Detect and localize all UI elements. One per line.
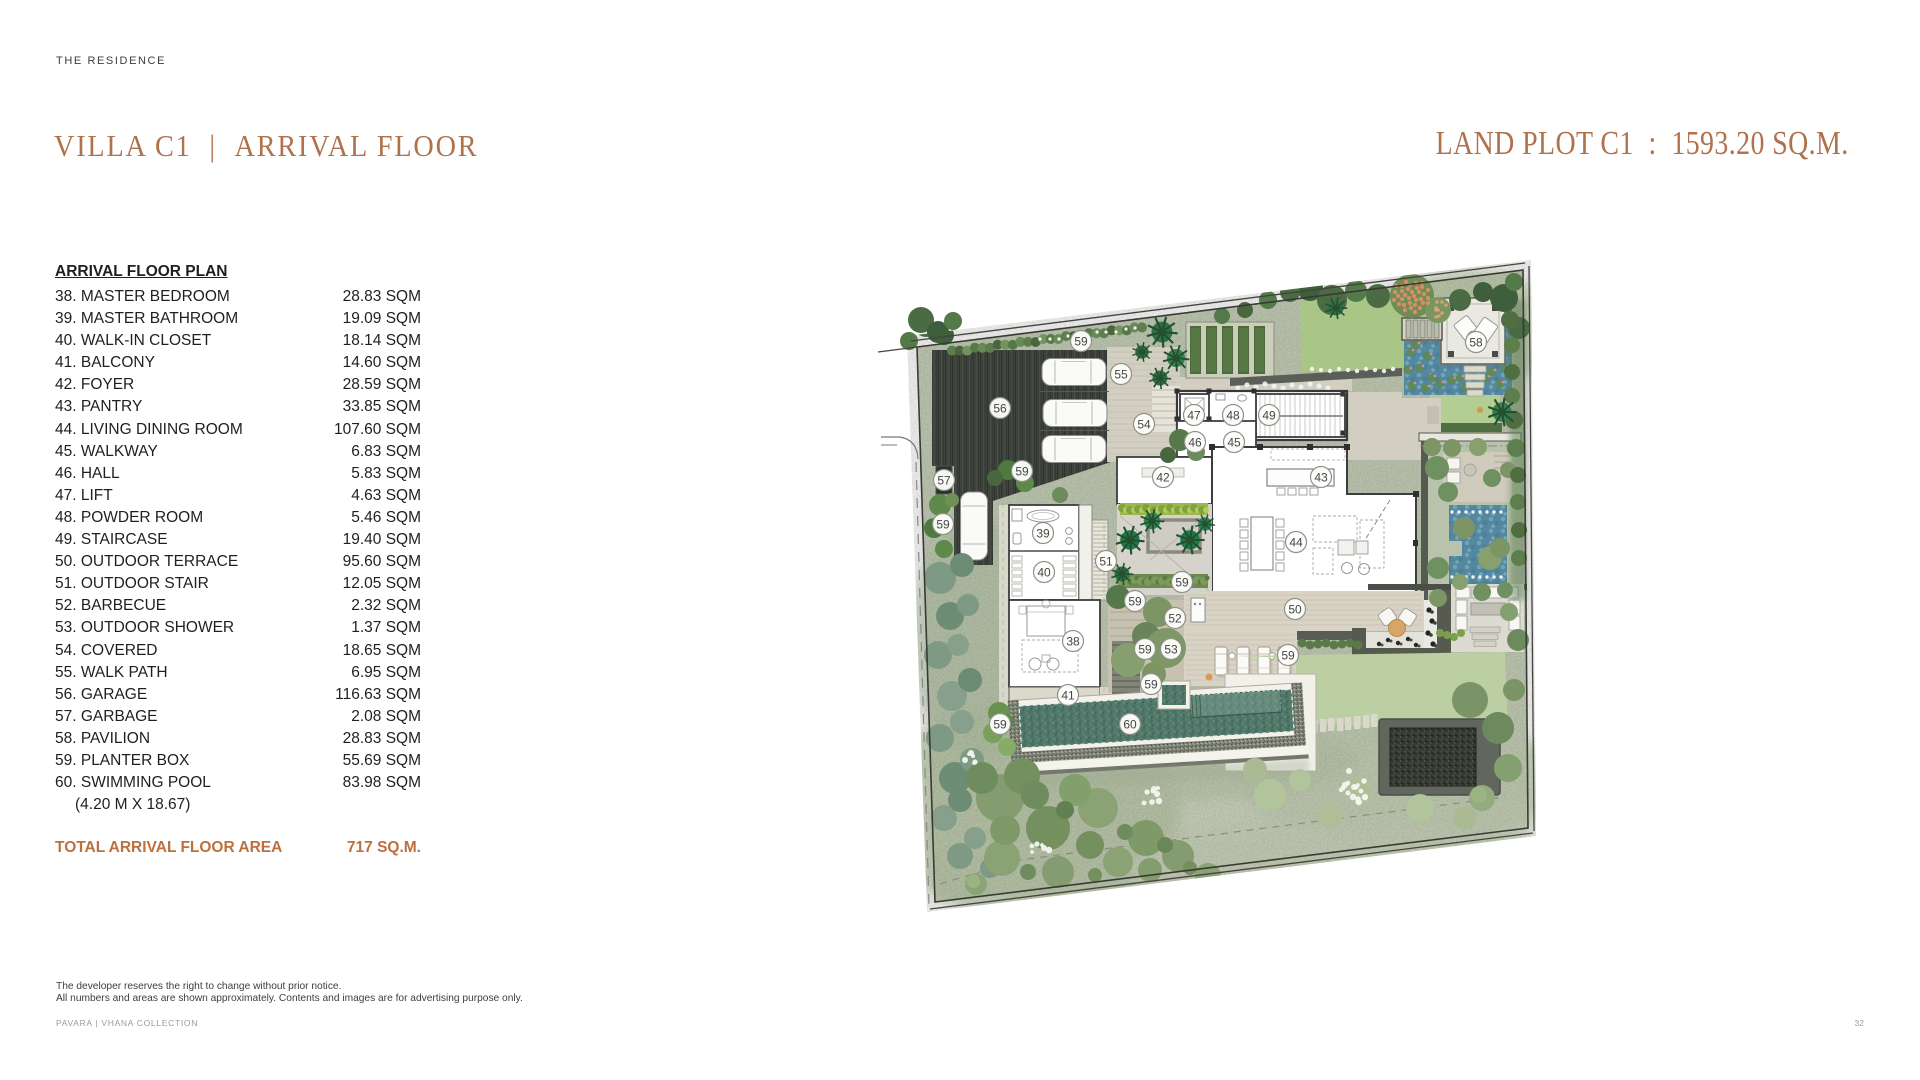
svg-text:47: 47 (1187, 408, 1201, 422)
svg-text:59: 59 (1138, 642, 1152, 656)
svg-text:46: 46 (1188, 435, 1202, 449)
svg-text:58: 58 (1469, 335, 1483, 349)
svg-text:49: 49 (1262, 408, 1276, 422)
svg-text:59: 59 (1074, 334, 1088, 348)
svg-text:40: 40 (1037, 565, 1051, 579)
svg-text:54: 54 (1137, 417, 1151, 431)
svg-text:59: 59 (1175, 575, 1189, 589)
svg-text:59: 59 (1144, 677, 1158, 691)
svg-text:44: 44 (1289, 535, 1303, 549)
svg-text:45: 45 (1227, 435, 1241, 449)
svg-text:59: 59 (936, 517, 950, 531)
svg-text:56: 56 (993, 401, 1007, 415)
svg-text:41: 41 (1061, 688, 1075, 702)
svg-text:39: 39 (1036, 526, 1050, 540)
svg-text:53: 53 (1164, 642, 1178, 656)
svg-text:43: 43 (1314, 470, 1328, 484)
svg-text:48: 48 (1226, 408, 1240, 422)
svg-text:59: 59 (1281, 648, 1295, 662)
svg-text:38: 38 (1066, 634, 1080, 648)
svg-text:59: 59 (1015, 464, 1029, 478)
svg-text:59: 59 (1128, 594, 1142, 608)
svg-text:51: 51 (1099, 554, 1113, 568)
svg-text:42: 42 (1156, 470, 1170, 484)
svg-text:59: 59 (993, 717, 1007, 731)
svg-text:57: 57 (937, 473, 951, 487)
svg-text:60: 60 (1123, 717, 1137, 731)
svg-text:55: 55 (1114, 367, 1128, 381)
svg-text:52: 52 (1168, 611, 1182, 625)
svg-text:50: 50 (1288, 602, 1302, 616)
